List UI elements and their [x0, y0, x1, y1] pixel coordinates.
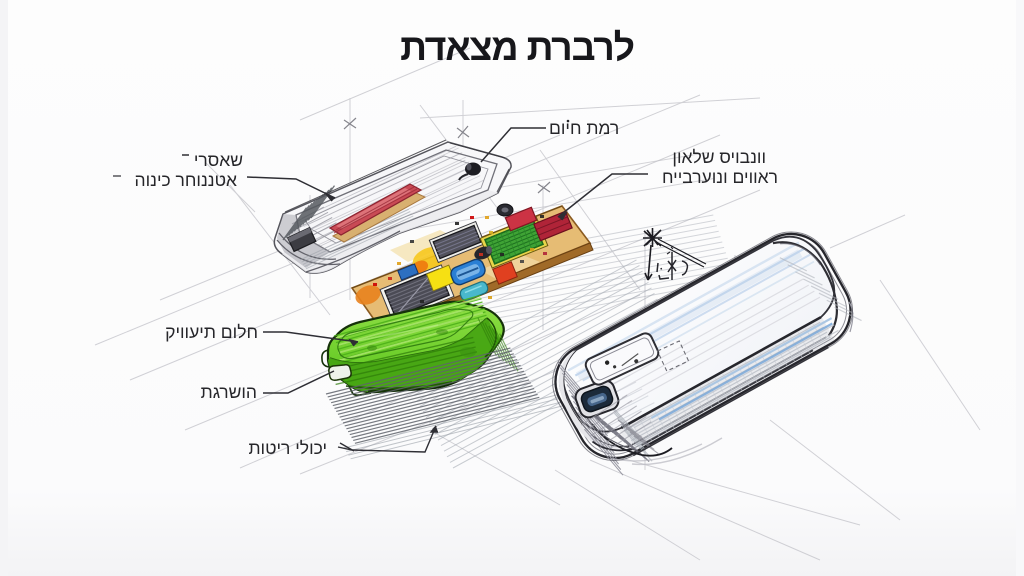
svg-text:חלום תיעוויק: חלום תיעוויק [165, 322, 258, 342]
svg-text:שאסרי: שאסרי [194, 150, 243, 170]
svg-text:ראווים ונוערבייח: ראווים ונוערבייח [662, 167, 778, 187]
svg-text:וונבויס שלאון: וונבויס שלאון [672, 147, 766, 167]
svg-text:לרברת מצאדת: לרברת מצאדת [400, 26, 634, 68]
svg-text:רמת חיום: רמת חיום [549, 118, 619, 138]
svg-text:אטננוחר כינוה: אטננוחר כינוה [135, 170, 238, 190]
svg-text:הושרגת: הושרגת [201, 382, 257, 402]
svg-text:יכולי ריטות: יכולי ריטות [248, 438, 327, 458]
